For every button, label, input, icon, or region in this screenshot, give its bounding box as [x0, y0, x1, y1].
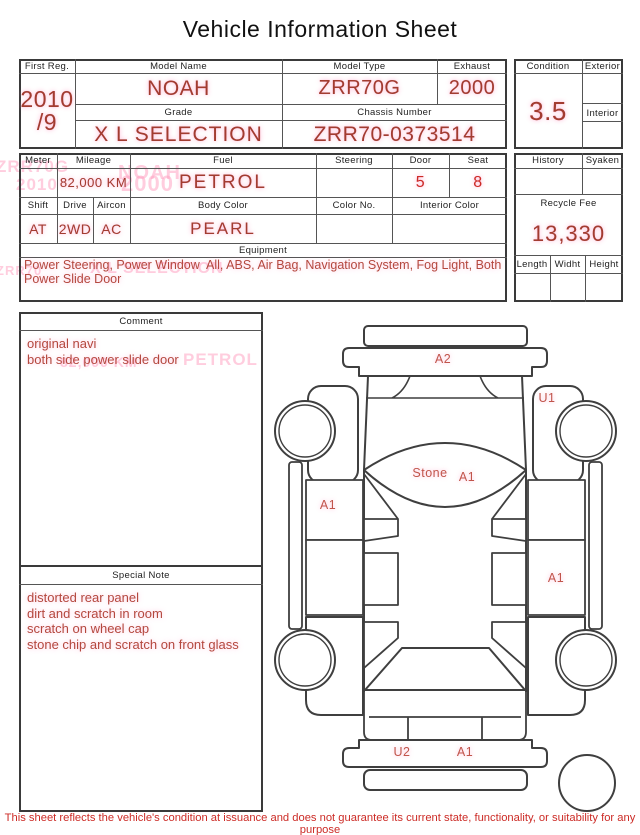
damage-label: A1 [459, 470, 475, 484]
equipment-line: Power Slide Door [24, 273, 502, 287]
mileage-value: 82,000 KM [57, 168, 130, 197]
syaken-label: Syaken [582, 153, 623, 168]
damage-label: U2 [394, 745, 411, 759]
special-note-line: stone chip and scratch on front glass [27, 637, 259, 653]
drive-label: Drive [57, 197, 93, 214]
page-title: Vehicle Information Sheet [0, 16, 640, 43]
color-no-label: Color No. [316, 197, 392, 214]
door-value: 5 [392, 168, 449, 197]
grade-label: Grade [75, 104, 282, 120]
mileage-label: Mileage [57, 153, 130, 168]
body-color-value: PEARL [130, 214, 316, 243]
first-reg-value: 2010 /9 [19, 74, 75, 148]
grid-line [19, 330, 263, 331]
damage-label: A1 [320, 498, 336, 512]
shift-value: AT [19, 214, 57, 243]
exterior-label: Exterior [582, 59, 623, 73]
width-label: Widht [550, 255, 585, 273]
recycle-fee-label: Recycle Fee [514, 194, 623, 212]
aircon-value: AC [93, 214, 130, 243]
special-note-label: Special Note [19, 566, 263, 584]
model-name-value: NOAH [75, 73, 282, 104]
interior-color-label: Interior Color [392, 197, 507, 214]
special-note-line: distorted rear panel [27, 590, 259, 606]
first-reg-label: First Reg. [19, 59, 75, 73]
comment-box [19, 312, 263, 812]
model-type-label: Model Type [282, 59, 437, 73]
drive-value: 2WD [57, 214, 93, 243]
equipment-text: Power Steering, Power Window All, ABS, A… [24, 259, 502, 286]
exterior-value [582, 73, 623, 103]
damage-label: A2 [435, 352, 451, 366]
chassis-number-value: ZRR70-0373514 [282, 120, 507, 149]
vehicle-information-sheet: ZRR70G2010NOAH2000X L SELECTIONZRR70PETR… [0, 0, 640, 835]
steering-label: Steering [316, 153, 392, 168]
first-reg-year: 2010 [20, 88, 73, 111]
comment-label: Comment [19, 312, 263, 330]
car-damage-diagram: A2U1StoneA1A1A1U2A1 [270, 318, 640, 818]
recycle-fee-value: 13,330 [514, 212, 623, 255]
seat-label: Seat [449, 153, 507, 168]
damage-label: Stone [412, 466, 447, 480]
special-note-text: distorted rear paneldirt and scratch in … [27, 590, 259, 652]
grid-line [514, 273, 623, 274]
interior-label: Interior [582, 105, 623, 121]
door-label: Door [392, 153, 449, 168]
body-color-label: Body Color [130, 197, 316, 214]
grade-value: X L SELECTION [75, 120, 282, 149]
height-label: Height [585, 255, 623, 273]
equipment-line: Power Steering, Power Window All, ABS, A… [24, 259, 502, 273]
meter-label: Meter [19, 153, 57, 168]
comment-line: both side power slide door [27, 352, 257, 368]
car-top-view-drawing [270, 318, 640, 818]
seat-value: 8 [449, 168, 507, 197]
first-reg-month: /9 [37, 111, 57, 134]
exhaust-label: Exhaust [437, 59, 507, 73]
comment-line: original navi [27, 336, 257, 352]
condition-value: 3.5 [514, 73, 582, 149]
grid-line [514, 168, 623, 169]
damage-label: A1 [457, 745, 473, 759]
interior-value [582, 121, 623, 149]
model-name-label: Model Name [75, 59, 282, 73]
model-type-value: ZRR70G [282, 73, 437, 104]
shift-label: Shift [19, 197, 57, 214]
aircon-label: Aircon [93, 197, 130, 214]
special-note-line: dirt and scratch in room [27, 606, 259, 622]
fuel-value: PETROL [130, 168, 316, 197]
special-note-line: scratch on wheel cap [27, 621, 259, 637]
chassis-number-label: Chassis Number [282, 104, 507, 120]
disclaimer-text: This sheet reflects the vehicle's condit… [0, 812, 640, 835]
equipment-label: Equipment [19, 243, 507, 257]
condition-label: Condition [514, 59, 582, 73]
comment-text: original naviboth side power slide door [27, 336, 257, 367]
grid-line [582, 103, 623, 104]
length-label: Length [514, 255, 550, 273]
grid-line [19, 584, 263, 585]
history-label: History [514, 153, 582, 168]
damage-label: A1 [548, 571, 564, 585]
damage-label: U1 [539, 391, 556, 405]
fuel-label: Fuel [130, 153, 316, 168]
exhaust-value: 2000 [437, 73, 507, 104]
